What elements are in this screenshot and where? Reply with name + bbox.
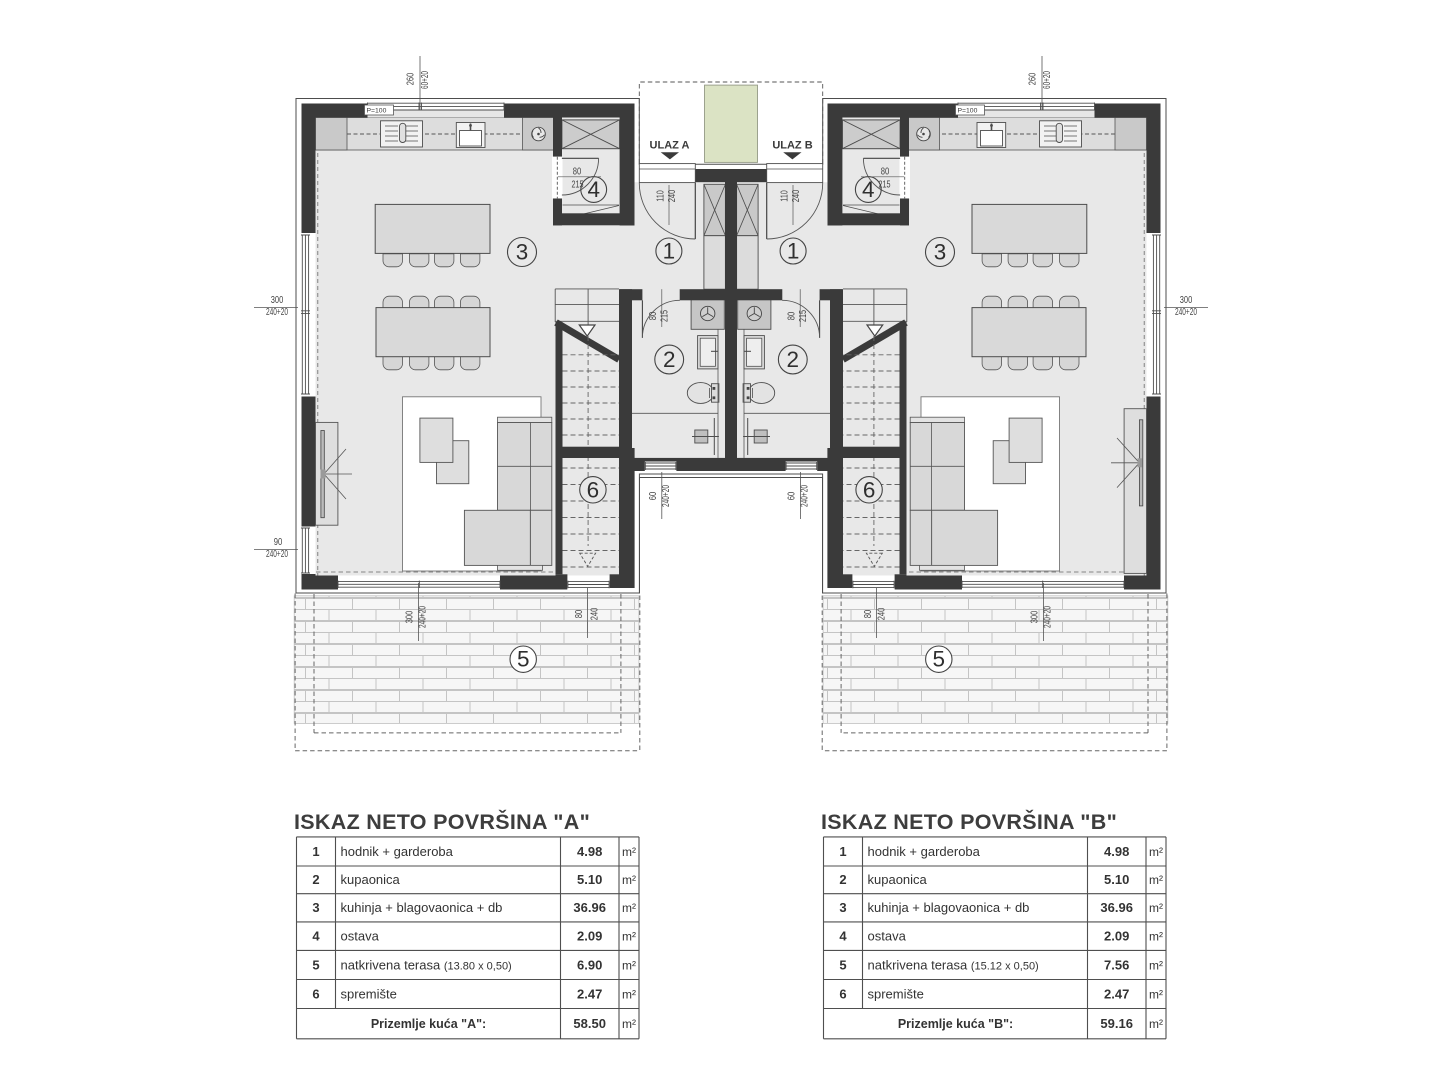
svg-text:300: 300 (271, 294, 284, 306)
svg-text:m²: m² (622, 901, 636, 915)
svg-text:4: 4 (839, 929, 847, 944)
svg-text:2.09: 2.09 (1104, 929, 1129, 944)
svg-text:240+20: 240+20 (417, 606, 429, 628)
svg-text:hodnik + garderoba: hodnik + garderoba (341, 844, 454, 859)
svg-text:300: 300 (1029, 611, 1041, 624)
svg-text:m²: m² (1149, 930, 1163, 944)
svg-text:240: 240 (589, 608, 601, 621)
svg-text:80: 80 (786, 312, 798, 321)
svg-text:5: 5 (517, 647, 530, 672)
svg-text:6.90: 6.90 (577, 957, 602, 972)
svg-text:60+20: 60+20 (419, 71, 431, 89)
svg-text:60+20: 60+20 (1041, 71, 1053, 89)
svg-text:hodnik + garderoba: hodnik + garderoba (868, 844, 981, 859)
svg-text:5: 5 (839, 957, 846, 972)
svg-text:P=100: P=100 (958, 107, 978, 114)
svg-text:m²: m² (622, 1017, 636, 1031)
svg-text:215: 215 (879, 179, 891, 191)
svg-text:80: 80 (573, 610, 585, 619)
svg-text:300: 300 (1180, 294, 1193, 306)
svg-text:ostava: ostava (868, 929, 907, 944)
svg-text:4: 4 (862, 177, 875, 202)
svg-text:4: 4 (587, 177, 600, 202)
svg-text:6: 6 (587, 477, 600, 502)
svg-text:1: 1 (787, 239, 800, 264)
svg-text:6: 6 (863, 477, 876, 502)
svg-text:ISKAZ NETO POVRŠINA "A": ISKAZ NETO POVRŠINA "A" (294, 809, 590, 834)
svg-text:3: 3 (516, 240, 529, 265)
svg-text:2: 2 (663, 347, 676, 372)
svg-text:kupaonica: kupaonica (341, 872, 401, 887)
svg-text:m²: m² (622, 930, 636, 944)
svg-text:240: 240 (790, 190, 802, 203)
svg-text:m²: m² (622, 873, 636, 887)
svg-text:m²: m² (622, 845, 636, 859)
svg-text:5.10: 5.10 (577, 872, 602, 887)
svg-text:260: 260 (405, 73, 417, 86)
svg-text:ULAZ A: ULAZ A (650, 140, 690, 152)
svg-text:2.47: 2.47 (577, 986, 602, 1001)
svg-text:59.16: 59.16 (1100, 1016, 1133, 1031)
svg-text:215: 215 (659, 310, 671, 322)
svg-text:spremište: spremište (868, 986, 924, 1001)
svg-text:kuhinja + blagovaonica + db: kuhinja + blagovaonica + db (341, 900, 503, 915)
svg-text:215: 215 (797, 310, 809, 322)
svg-text:kuhinja + blagovaonica + db: kuhinja + blagovaonica + db (868, 900, 1030, 915)
svg-text:ostava: ostava (341, 929, 380, 944)
svg-text:2: 2 (312, 872, 319, 887)
svg-text:4: 4 (312, 929, 320, 944)
svg-text:240+20: 240+20 (660, 485, 672, 507)
svg-text:3: 3 (839, 900, 846, 915)
svg-text:m²: m² (1149, 873, 1163, 887)
svg-text:60: 60 (647, 492, 659, 501)
svg-text:spremište: spremište (341, 986, 397, 1001)
svg-text:ISKAZ NETO POVRŠINA "B": ISKAZ NETO POVRŠINA "B" (821, 809, 1117, 834)
svg-text:m²: m² (1149, 1017, 1163, 1031)
svg-text:Prizemlje kuća "B":: Prizemlje kuća "B": (898, 1017, 1013, 1031)
svg-text:m²: m² (1149, 845, 1163, 859)
svg-text:1: 1 (312, 844, 319, 859)
svg-text:260: 260 (1027, 73, 1039, 86)
svg-text:240: 240 (666, 190, 678, 203)
svg-text:P=100: P=100 (367, 107, 387, 114)
svg-text:36.96: 36.96 (1100, 900, 1133, 915)
svg-text:110: 110 (655, 190, 667, 202)
svg-text:ULAZ B: ULAZ B (772, 140, 812, 152)
svg-text:1: 1 (839, 844, 846, 859)
svg-text:Prizemlje kuća "A":: Prizemlje kuća "A": (371, 1017, 486, 1031)
svg-text:110: 110 (779, 190, 791, 202)
svg-text:60: 60 (786, 492, 798, 501)
svg-text:80: 80 (881, 166, 890, 178)
svg-text:kupaonica: kupaonica (868, 872, 928, 887)
svg-text:240: 240 (876, 608, 888, 621)
svg-text:300: 300 (404, 611, 416, 624)
svg-text:5: 5 (933, 647, 946, 672)
svg-text:m²: m² (1149, 987, 1163, 1001)
svg-text:80: 80 (862, 610, 874, 619)
svg-text:80: 80 (573, 166, 582, 178)
svg-text:m²: m² (1149, 901, 1163, 915)
svg-text:7.56: 7.56 (1104, 957, 1129, 972)
svg-text:5.10: 5.10 (1104, 872, 1129, 887)
svg-text:215: 215 (572, 179, 584, 191)
svg-text:natkrivena terasa (13.80 x 0,5: natkrivena terasa (13.80 x 0,50) (341, 957, 512, 972)
svg-text:36.96: 36.96 (573, 900, 606, 915)
svg-text:2: 2 (787, 347, 800, 372)
svg-text:m²: m² (622, 958, 636, 972)
svg-text:5: 5 (312, 957, 319, 972)
svg-text:2.47: 2.47 (1104, 986, 1129, 1001)
svg-text:2.09: 2.09 (577, 929, 602, 944)
svg-text:58.50: 58.50 (573, 1016, 606, 1031)
svg-text:6: 6 (839, 986, 846, 1001)
svg-text:2: 2 (839, 872, 846, 887)
svg-text:natkrivena terasa (15.12 x 0,5: natkrivena terasa (15.12 x 0,50) (868, 957, 1039, 972)
svg-text:3: 3 (312, 900, 319, 915)
svg-text:6: 6 (312, 986, 319, 1001)
svg-text:4.98: 4.98 (577, 844, 602, 859)
svg-text:3: 3 (934, 240, 947, 265)
svg-text:m²: m² (622, 987, 636, 1001)
svg-text:90: 90 (274, 536, 283, 548)
svg-text:4.98: 4.98 (1104, 844, 1129, 859)
svg-text:80: 80 (647, 312, 659, 321)
svg-text:240+20: 240+20 (1042, 606, 1054, 628)
svg-text:m²: m² (1149, 958, 1163, 972)
svg-text:1: 1 (663, 239, 676, 264)
svg-text:240+20: 240+20 (799, 485, 811, 507)
